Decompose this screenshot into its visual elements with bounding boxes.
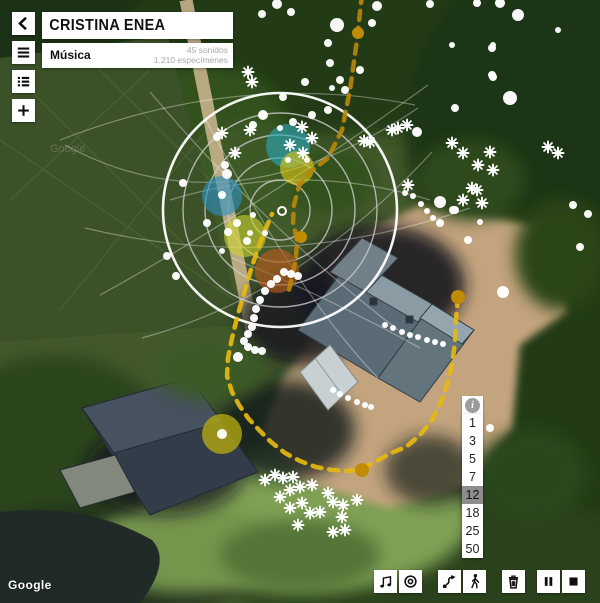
specimen-dot[interactable]: [477, 219, 483, 225]
specimen-dot[interactable]: [308, 111, 316, 119]
scale-value-3[interactable]: 3: [462, 432, 483, 450]
flower-marker[interactable]: [288, 472, 299, 483]
specimen-dot[interactable]: [555, 27, 561, 33]
specimen-dot[interactable]: [301, 78, 309, 86]
specimen-dot[interactable]: [329, 85, 335, 91]
specimen-dot[interactable]: [362, 402, 368, 408]
listening-point-marker[interactable]: [278, 207, 286, 215]
specimen-dot[interactable]: [464, 236, 472, 244]
chevron-left-icon: [15, 15, 32, 32]
flower-marker[interactable]: [285, 140, 296, 151]
flower-marker[interactable]: [447, 138, 458, 149]
specimen-dot[interactable]: [390, 325, 396, 331]
specimens-count: 1.210 especímenes: [154, 56, 228, 66]
walking-person-icon: [466, 573, 483, 590]
specimen-dot[interactable]: [488, 44, 496, 52]
specimen-dot[interactable]: [356, 66, 364, 74]
flower-marker[interactable]: [488, 165, 499, 176]
walk-button[interactable]: [463, 570, 486, 593]
specimen-dot[interactable]: [426, 0, 434, 8]
specimen-dot[interactable]: [280, 268, 288, 276]
specimen-dot[interactable]: [277, 125, 283, 131]
specimen-dot[interactable]: [172, 272, 180, 280]
specimen-dot[interactable]: [486, 424, 494, 432]
list-button[interactable]: [12, 70, 35, 93]
itinerary-node[interactable]: [295, 231, 307, 243]
specimen-dot[interactable]: [324, 39, 332, 47]
specimen-dot[interactable]: [449, 42, 455, 48]
specimen-dot[interactable]: [324, 106, 332, 114]
specimen-dot[interactable]: [285, 157, 291, 163]
specimen-dot[interactable]: [217, 429, 227, 439]
flower-marker[interactable]: [245, 125, 256, 136]
scale-value-7[interactable]: 7: [462, 468, 483, 486]
route-icon: [441, 573, 458, 590]
specimen-dot[interactable]: [304, 157, 310, 163]
specimen-dot[interactable]: [287, 270, 295, 278]
flower-marker[interactable]: [307, 133, 318, 144]
itinerary-node[interactable]: [352, 27, 364, 39]
flower-marker[interactable]: [352, 495, 363, 506]
pause-icon: [540, 573, 557, 590]
flower-marker[interactable]: [275, 492, 286, 503]
specimen-dot[interactable]: [279, 93, 287, 101]
flower-marker[interactable]: [247, 77, 258, 88]
specimen-dot[interactable]: [415, 334, 421, 340]
pause-button[interactable]: [537, 570, 560, 593]
specimen-dot[interactable]: [440, 341, 446, 347]
info-button[interactable]: i: [462, 396, 483, 414]
specimen-dot[interactable]: [219, 248, 225, 254]
stop-button[interactable]: [562, 570, 585, 593]
specimen-dot[interactable]: [289, 118, 297, 126]
specimen-dot[interactable]: [576, 243, 584, 251]
specimen-dot[interactable]: [424, 337, 430, 343]
specimen-dot[interactable]: [434, 196, 446, 208]
species-circle[interactable]: [280, 151, 314, 185]
specimen-dot[interactable]: [233, 219, 241, 227]
flower-marker[interactable]: [458, 195, 469, 206]
music-button[interactable]: [374, 570, 397, 593]
specimen-dot[interactable]: [179, 179, 187, 187]
back-button[interactable]: [12, 12, 35, 35]
flower-marker[interactable]: [328, 497, 339, 508]
specimen-dot[interactable]: [512, 9, 524, 21]
info-icon: i: [465, 398, 480, 413]
flower-marker[interactable]: [298, 148, 309, 159]
target-button[interactable]: [399, 570, 422, 593]
flower-marker[interactable]: [323, 488, 334, 499]
specimen-dot[interactable]: [354, 399, 360, 405]
specimen-dot[interactable]: [402, 190, 408, 196]
specimen-dot[interactable]: [473, 0, 481, 7]
itinerary-node[interactable]: [355, 463, 369, 477]
species-circle[interactable]: [224, 215, 266, 257]
flower-marker[interactable]: [553, 148, 564, 159]
stop-icon: [565, 573, 582, 590]
specimen-dot[interactable]: [267, 280, 275, 288]
itinerary-node[interactable]: [451, 290, 465, 304]
google-attribution: Google: [8, 578, 52, 592]
flower-marker[interactable]: [472, 185, 483, 196]
flower-marker[interactable]: [297, 498, 308, 509]
specimen-dot[interactable]: [256, 296, 264, 304]
sidebar: [12, 12, 35, 122]
flower-marker[interactable]: [485, 147, 496, 158]
scale-value-18[interactable]: 18: [462, 504, 483, 522]
specimen-dot[interactable]: [248, 323, 256, 331]
specimen-dot[interactable]: [233, 352, 243, 362]
specimen-dot[interactable]: [272, 0, 282, 9]
add-button[interactable]: [12, 99, 35, 122]
flower-marker[interactable]: [297, 122, 308, 133]
specimen-dot[interactable]: [250, 314, 258, 322]
scale-value-25[interactable]: 25: [462, 522, 483, 540]
target-icon: [402, 573, 419, 590]
stats: 45 sonidos 1.210 especímenes: [154, 46, 228, 65]
specimen-dot[interactable]: [418, 201, 424, 207]
specimen-dot[interactable]: [224, 228, 232, 236]
flower-marker[interactable]: [340, 525, 351, 536]
specimen-dot[interactable]: [495, 0, 505, 8]
specimen-dot[interactable]: [412, 127, 422, 137]
menu-button[interactable]: [12, 41, 35, 64]
specimen-dot[interactable]: [410, 193, 416, 199]
flower-marker[interactable]: [260, 475, 271, 486]
specimen-dot[interactable]: [399, 329, 405, 335]
specimen-dot[interactable]: [341, 86, 349, 94]
flower-marker[interactable]: [315, 507, 326, 518]
flower-marker[interactable]: [458, 148, 469, 159]
specimen-dot[interactable]: [258, 347, 266, 355]
toolbar: [374, 570, 585, 593]
specimen-dot[interactable]: [569, 201, 577, 209]
specimen-dot[interactable]: [336, 76, 344, 84]
flower-marker[interactable]: [230, 148, 241, 159]
specimen-dot[interactable]: [489, 73, 497, 81]
flower-marker[interactable]: [403, 180, 414, 191]
bullet-list-icon: [15, 73, 32, 90]
hamburger-icon: [15, 44, 32, 61]
specimen-dot[interactable]: [436, 219, 444, 227]
header-title-box: CRISTINA ENEA: [42, 12, 233, 39]
page-title: CRISTINA ENEA: [42, 12, 165, 39]
flower-marker[interactable]: [328, 527, 339, 538]
specimen-dot[interactable]: [294, 272, 302, 280]
flower-marker[interactable]: [295, 482, 306, 493]
specimen-dot[interactable]: [330, 387, 336, 393]
specimen-dot[interactable]: [247, 230, 253, 236]
flower-marker[interactable]: [477, 198, 488, 209]
scale-value-50[interactable]: 50: [462, 540, 483, 558]
specimen-dot[interactable]: [326, 59, 334, 67]
specimen-dot[interactable]: [252, 305, 260, 313]
flower-marker[interactable]: [543, 142, 554, 153]
specimen-dot[interactable]: [330, 18, 344, 32]
flower-marker[interactable]: [278, 473, 289, 484]
flower-marker[interactable]: [293, 520, 304, 531]
scale-value-5[interactable]: 5: [462, 450, 483, 468]
specimen-dot[interactable]: [382, 322, 388, 328]
flower-marker[interactable]: [285, 503, 296, 514]
specimen-dot[interactable]: [221, 161, 229, 169]
specimen-dot[interactable]: [449, 206, 457, 214]
specimen-dot[interactable]: [251, 346, 259, 354]
trash-button[interactable]: [502, 570, 525, 593]
scale-value-12[interactable]: 12: [462, 486, 483, 504]
specimen-dot[interactable]: [258, 110, 268, 120]
specimen-dot[interactable]: [432, 339, 438, 345]
scale-legend: i 135712182550: [462, 396, 483, 558]
app-root: Google CRISTINA ENEA Música 45 sonidos 1…: [0, 0, 600, 603]
specimen-dot[interactable]: [287, 8, 295, 16]
category-label: Música: [42, 48, 91, 62]
specimen-dot[interactable]: [368, 404, 374, 410]
trash-icon: [505, 573, 522, 590]
scale-value-1[interactable]: 1: [462, 414, 483, 432]
specimen-dot[interactable]: [407, 332, 413, 338]
specimen-dot[interactable]: [258, 10, 266, 18]
specimen-dot[interactable]: [345, 395, 351, 401]
flower-marker[interactable]: [337, 512, 348, 523]
sound-map-overlay: [0, 0, 600, 603]
flower-marker[interactable]: [365, 137, 376, 148]
specimen-dot[interactable]: [451, 104, 459, 112]
specimen-dot[interactable]: [163, 252, 171, 260]
specimen-dot[interactable]: [244, 330, 252, 338]
route-button[interactable]: [438, 570, 461, 593]
specimen-dot[interactable]: [244, 343, 252, 351]
specimen-dot[interactable]: [430, 215, 436, 221]
flower-marker[interactable]: [285, 485, 296, 496]
specimen-dot[interactable]: [222, 169, 232, 179]
specimen-dot[interactable]: [250, 212, 256, 218]
specimen-dot[interactable]: [203, 219, 211, 227]
flower-marker[interactable]: [217, 128, 228, 139]
specimen-dot[interactable]: [368, 19, 376, 27]
header-subtitle-box: Música 45 sonidos 1.210 especímenes: [42, 43, 233, 68]
specimen-dot[interactable]: [243, 237, 251, 245]
specimen-dot[interactable]: [424, 208, 430, 214]
flower-marker[interactable]: [402, 120, 413, 131]
specimen-dot[interactable]: [337, 391, 343, 397]
flower-marker[interactable]: [473, 160, 484, 171]
specimen-dot[interactable]: [584, 210, 592, 218]
specimen-dot[interactable]: [372, 1, 382, 11]
plus-icon: [15, 102, 32, 119]
specimen-dot[interactable]: [503, 91, 517, 105]
flower-marker[interactable]: [307, 480, 318, 491]
flower-marker[interactable]: [305, 508, 316, 519]
specimen-dot[interactable]: [262, 230, 268, 236]
music-note-icon: [377, 573, 394, 590]
specimen-dot[interactable]: [497, 286, 509, 298]
specimen-dot[interactable]: [218, 191, 226, 199]
scale-values: 135712182550: [462, 414, 483, 558]
flower-marker[interactable]: [338, 500, 349, 511]
specimen-dot[interactable]: [261, 287, 269, 295]
